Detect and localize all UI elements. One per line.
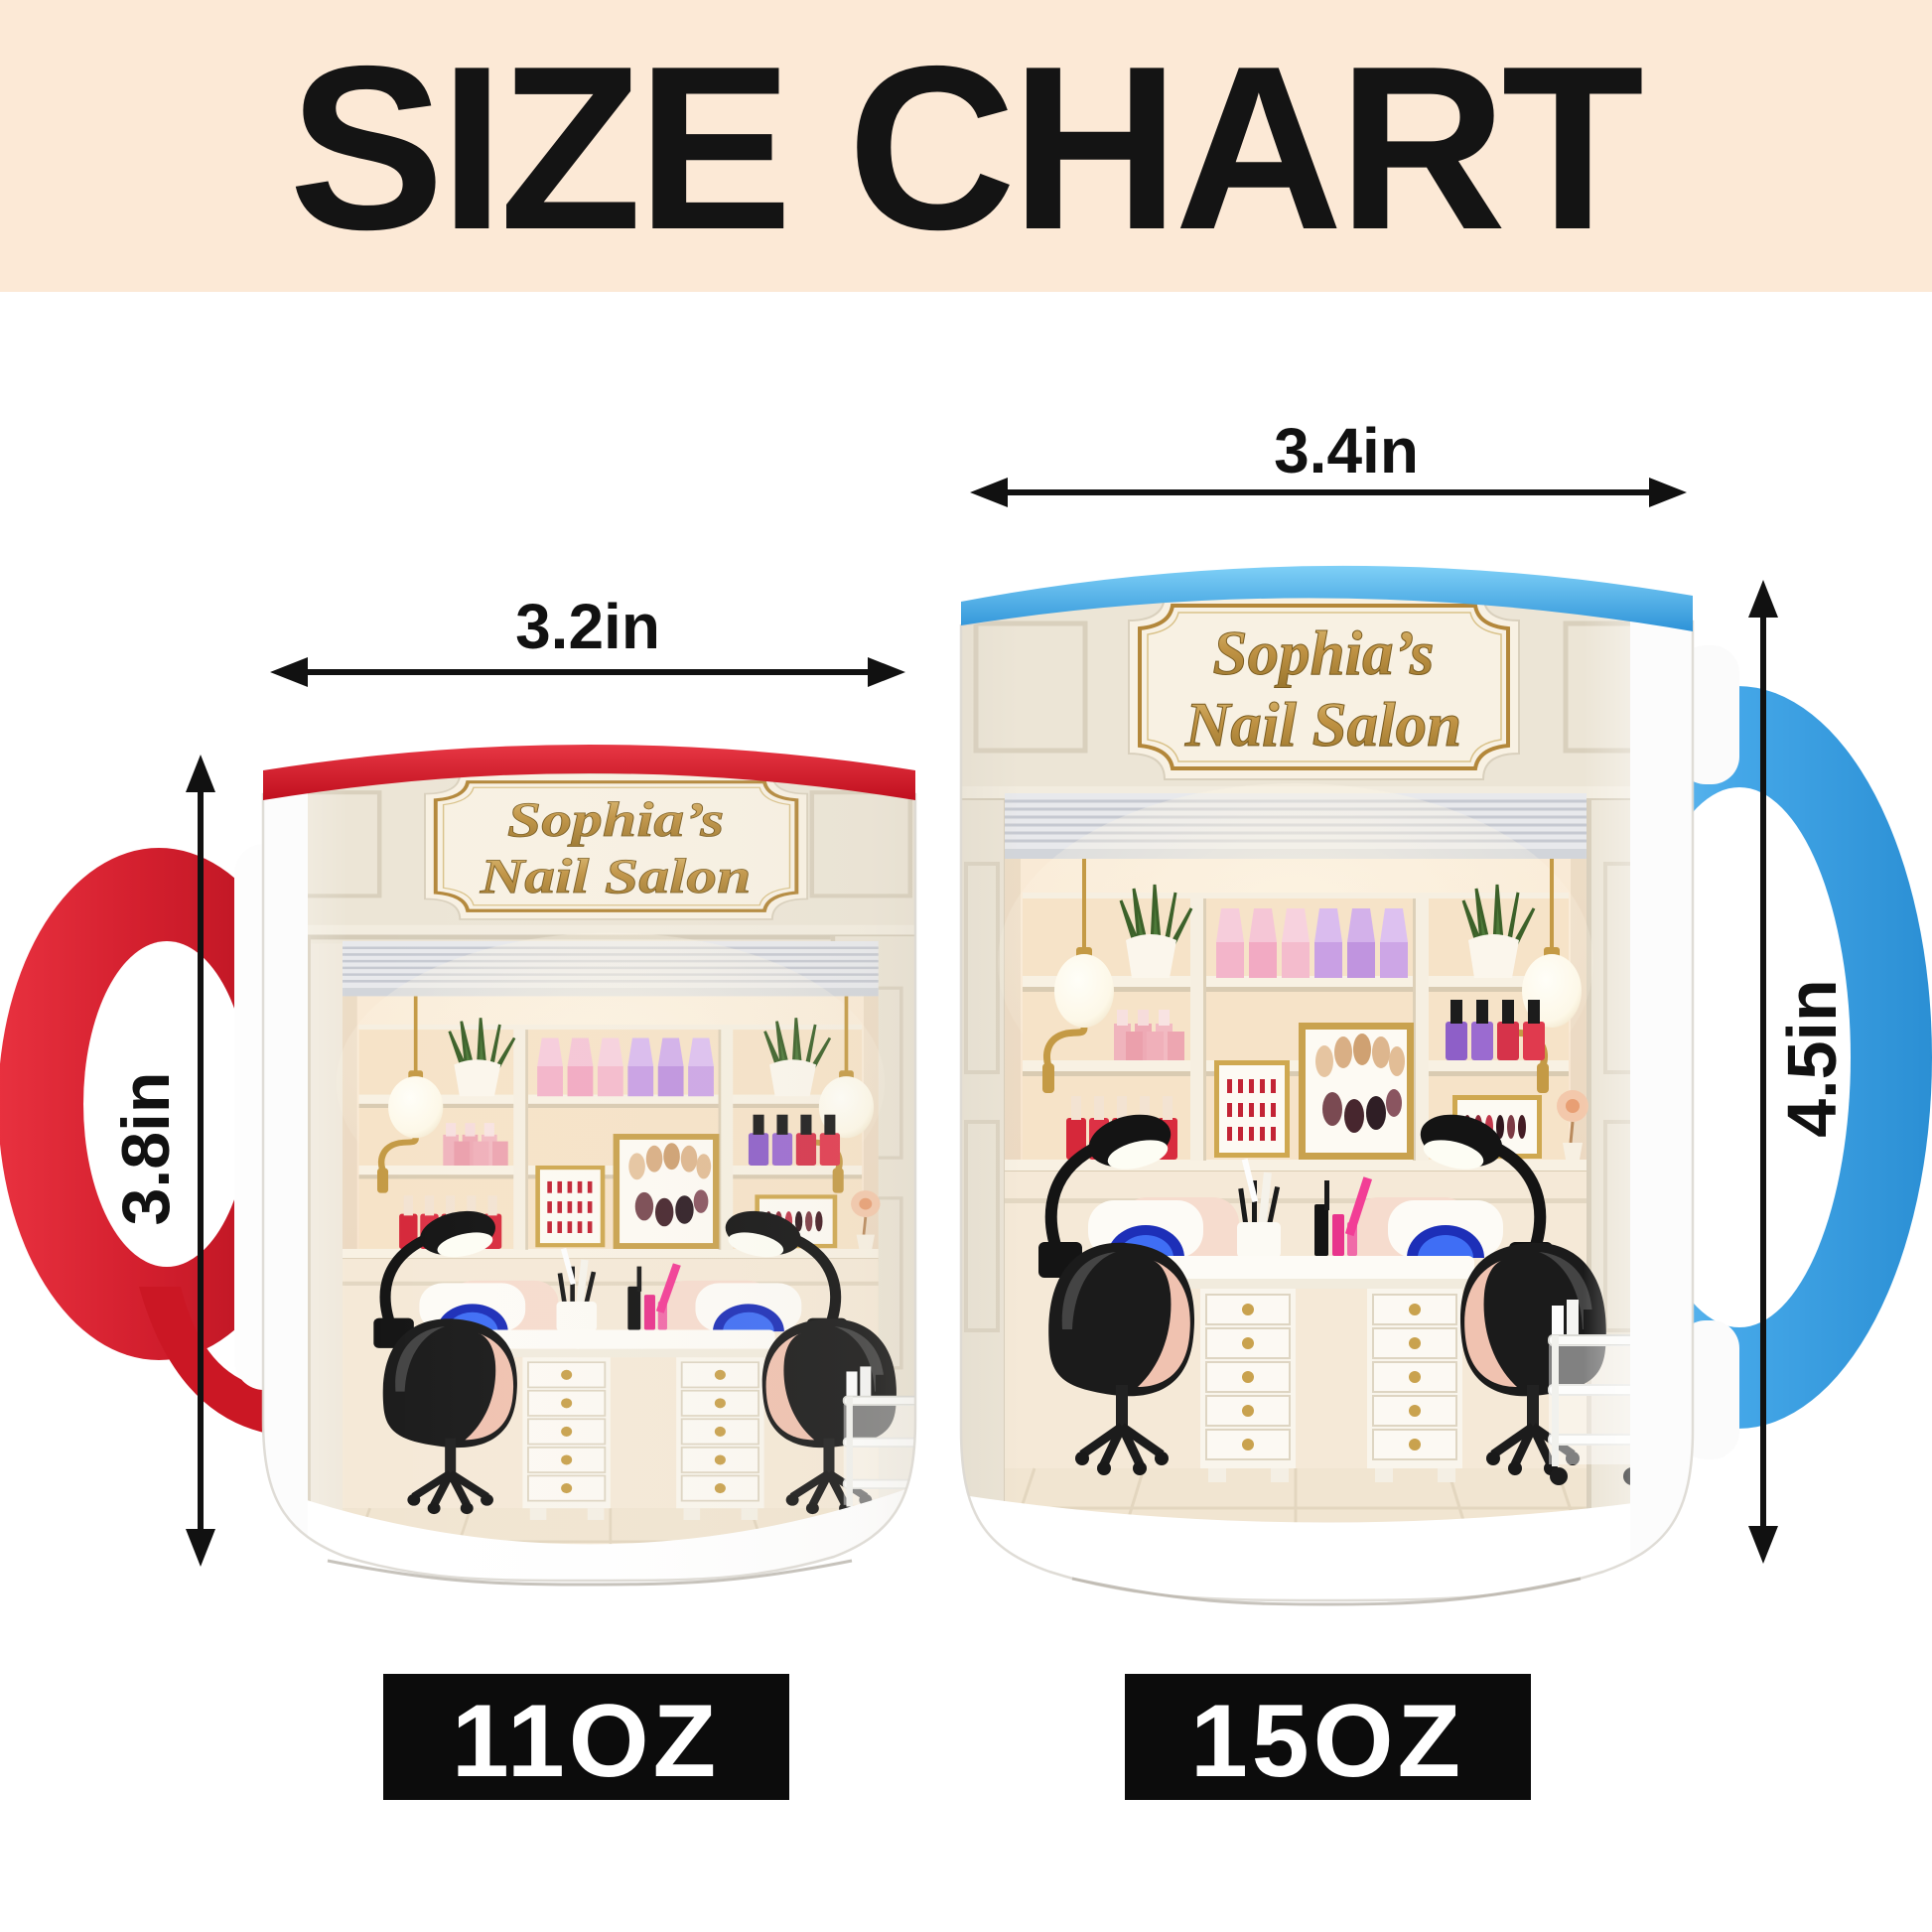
svg-text:3.8in: 3.8in <box>108 1072 184 1226</box>
svg-text:15OZ: 15OZ <box>1190 1684 1464 1799</box>
svg-text:4.5in: 4.5in <box>1773 979 1851 1138</box>
svg-text:3.4in: 3.4in <box>1274 415 1419 486</box>
svg-text:3.2in: 3.2in <box>515 591 660 662</box>
svg-text:11OZ: 11OZ <box>452 1684 720 1799</box>
svg-text:SIZE CHART: SIZE CHART <box>289 17 1642 278</box>
